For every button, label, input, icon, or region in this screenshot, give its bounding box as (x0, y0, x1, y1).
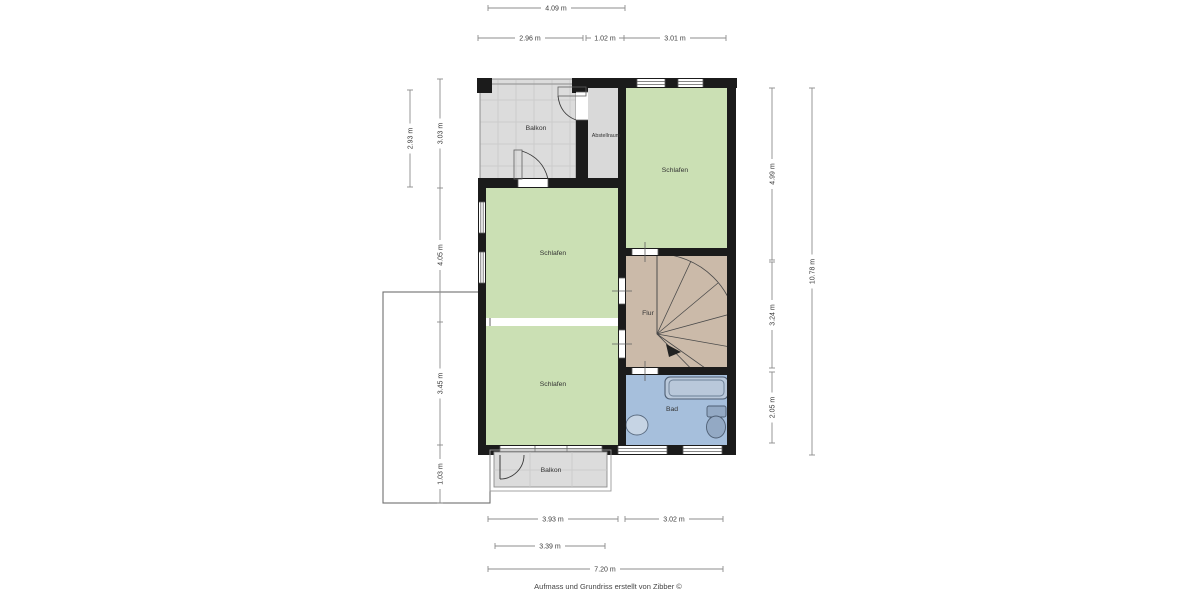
svg-text:2.05 m: 2.05 m (770, 397, 777, 419)
room-abstellraum (588, 86, 618, 178)
svg-text:3.45 m: 3.45 m (438, 373, 445, 395)
label-flur: Flur (642, 310, 654, 317)
window-bottom-3 (683, 446, 722, 454)
window-top-2 (678, 79, 703, 87)
dimension-top-mid: 1.02 m (586, 34, 624, 43)
dimension-top-left: 2.96 m (478, 34, 583, 43)
svg-text:10.78 m: 10.78 m (810, 259, 817, 284)
toilet-bowl (707, 416, 726, 438)
svg-text:3.24 m: 3.24 m (770, 304, 777, 326)
dimension-bottom-left: 3.93 m (488, 515, 618, 524)
sink (626, 415, 648, 435)
window-bottom-2 (618, 446, 667, 454)
dimension-top-overall: 4.09 m (488, 4, 625, 13)
wall-abstellraum-schlafen (618, 78, 626, 178)
window-left-1 (479, 202, 485, 233)
label-bad: Bad (666, 406, 678, 413)
floorplan-canvas: Balkon Abstellraum Schlafen Schlafen Flu… (0, 0, 1200, 600)
svg-text:3.93 m: 3.93 m (542, 517, 564, 524)
label-schlafen-top: Schlafen (662, 167, 689, 174)
balkon-corner-post-left (477, 78, 492, 93)
dimension-right-1: 4.99 m (768, 88, 777, 260)
dimension-top-right: 3.01 m (624, 34, 726, 43)
toilet-tank (707, 406, 726, 417)
dimension-bottom-overall: 7.20 m (488, 565, 723, 574)
svg-text:2.96 m: 2.96 m (519, 36, 541, 43)
wall-center-vertical (618, 178, 626, 445)
dimension-left-3: 3.45 m (436, 322, 445, 445)
svg-text:1.02 m: 1.02 m (594, 36, 616, 43)
dimension-left-2: 4.05 m (436, 188, 445, 322)
dimension-left-4: 1.03 m (436, 445, 445, 503)
room-balkon-top (480, 79, 576, 186)
dimension-right-overall: 10.78 m (808, 88, 817, 455)
footer-credit: Aufmass und Grundriss erstellt von Zibbe… (534, 582, 682, 591)
label-abstellraum: Abstellraum (592, 133, 621, 139)
label-balkon-bottom: Balkon (541, 467, 562, 474)
svg-text:4.09 m: 4.09 m (545, 6, 567, 13)
svg-text:7.20 m: 7.20 m (594, 567, 616, 574)
balkon-corner-post-right (572, 78, 588, 93)
label-balkon-top: Balkon (526, 125, 547, 132)
wall-right (727, 78, 736, 455)
dimension-left-outer: 2.93 m (406, 90, 415, 187)
dimension-right-3: 2.05 m (768, 372, 777, 443)
dimension-right-2: 3.24 m (768, 262, 777, 368)
dimension-left-1: 3.03 m (436, 79, 445, 188)
dimension-bottom-balkon: 3.39 m (495, 542, 605, 551)
window-left-2 (479, 252, 485, 283)
svg-text:2.93 m: 2.93 m (408, 128, 415, 150)
balkon-top-floor (480, 79, 576, 186)
svg-text:3.02 m: 3.02 m (663, 517, 685, 524)
svg-text:3.39 m: 3.39 m (539, 544, 561, 551)
svg-text:1.03 m: 1.03 m (438, 463, 445, 485)
window-top-1 (637, 79, 665, 87)
svg-text:4.05 m: 4.05 m (438, 244, 445, 266)
svg-text:3.03 m: 3.03 m (438, 123, 445, 145)
svg-text:4.99 m: 4.99 m (770, 163, 777, 185)
label-schlafen-mid: Schlafen (540, 250, 567, 257)
label-schlafen-bottom: Schlafen (540, 381, 567, 388)
svg-text:3.01 m: 3.01 m (664, 36, 686, 43)
wall-balkon-divider (478, 178, 626, 188)
dimension-bottom-right: 3.02 m (625, 515, 723, 524)
